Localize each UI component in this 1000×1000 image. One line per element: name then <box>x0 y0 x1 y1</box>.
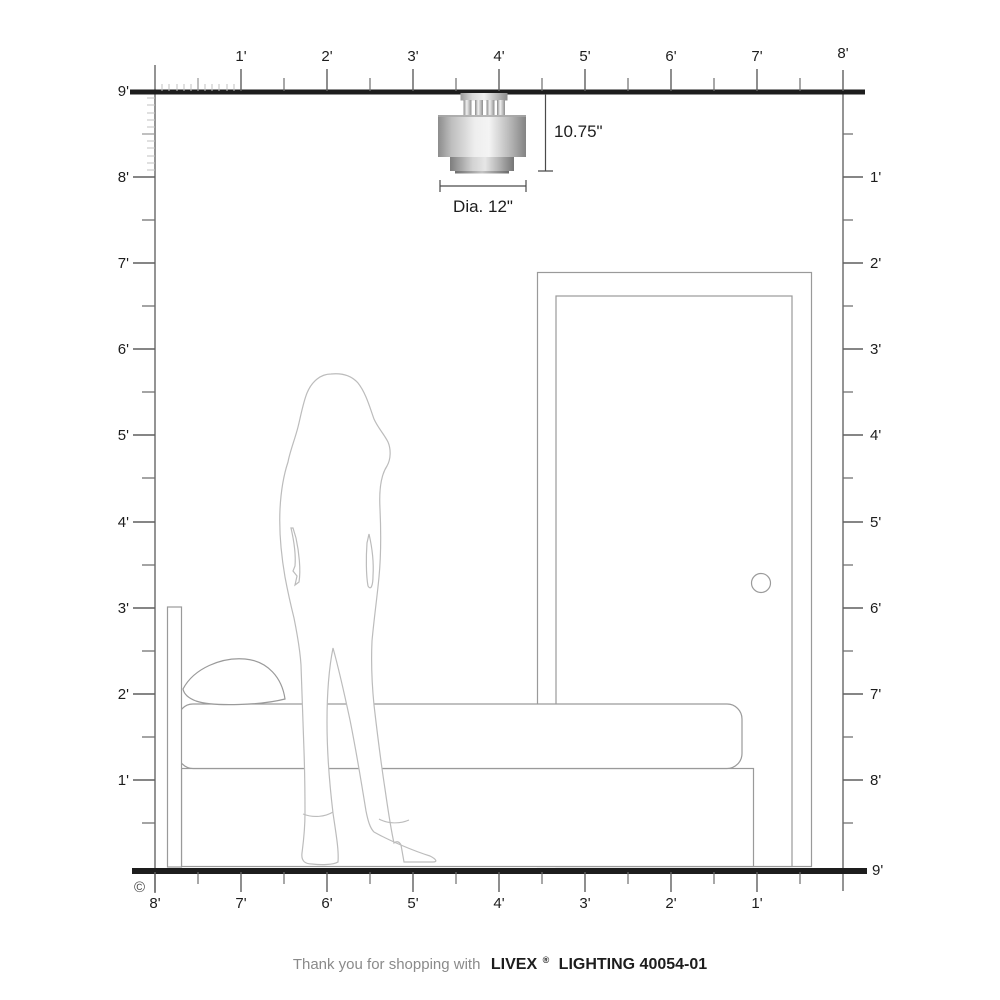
right-ruler-label: 1' <box>870 169 881 186</box>
left-ruler-label: 5' <box>118 427 129 444</box>
bottom-ruler-label: 4' <box>493 895 504 912</box>
footer-prefix: Thank you for shopping with <box>293 956 481 973</box>
bed-base <box>182 769 754 867</box>
left-ruler-label: 8' <box>118 169 129 186</box>
copyright-symbol: © <box>134 879 145 896</box>
bottom-ruler-label: 7' <box>235 895 246 912</box>
top-half-foot-ticks <box>284 78 800 91</box>
scale-diagram-svg: 1' 2' 3' 4' 5' 6' 7' 8' 9' 8' 7' 6' 5' 4… <box>0 0 1000 1000</box>
top-ruler-label: 6' <box>665 48 676 65</box>
bed-headboard <box>168 607 182 867</box>
right-ruler-label: 2' <box>870 255 881 272</box>
fixture-drum <box>438 115 526 157</box>
top-ruler-label: 4' <box>493 48 504 65</box>
height-dimension-label: 10.75" <box>554 122 603 141</box>
bottom-ruler-label: 1' <box>751 895 762 912</box>
top-ruler-label: 3' <box>407 48 418 65</box>
height-dimension: 10.75" <box>538 94 603 171</box>
left-ruler-label: 2' <box>118 686 129 703</box>
door-knob <box>752 574 771 593</box>
bottom-ruler-label: 6' <box>321 895 332 912</box>
left-ruler-label: 3' <box>118 600 129 617</box>
left-ruler-label: 1' <box>118 772 129 789</box>
footer-model: LIGHTING 40054-01 <box>559 956 708 973</box>
diameter-dimension: Dia. 12" <box>440 180 526 216</box>
right-ruler-label: 9' <box>872 862 883 879</box>
fixture-rod <box>487 100 495 117</box>
ceiling-light-fixture <box>438 93 526 174</box>
right-ruler-label: 3' <box>870 341 881 358</box>
footer-brand: LIVEX <box>491 956 538 973</box>
fixture-rod <box>475 100 483 117</box>
top-ruler-label: 7' <box>751 48 762 65</box>
right-half-foot-ticks <box>843 134 853 823</box>
top-ruler-label: 5' <box>579 48 590 65</box>
top-ruler-label: 1' <box>235 48 246 65</box>
diagram-canvas: 1' 2' 3' 4' 5' 6' 7' 8' 9' 8' 7' 6' 5' 4… <box>0 0 1000 1000</box>
bed-mattress <box>178 704 742 769</box>
right-ruler-label: 8' <box>870 772 881 789</box>
bottom-ruler-label: 8' <box>149 895 160 912</box>
fixture-canopy <box>461 93 508 101</box>
right-ruler-label: 4' <box>870 427 881 444</box>
bottom-ruler-label: 2' <box>665 895 676 912</box>
fixture-lower-tier <box>450 157 514 171</box>
left-ruler-label: 4' <box>118 514 129 531</box>
footer-registered-mark: ® <box>543 955 550 965</box>
top-ruler-label: 2' <box>321 48 332 65</box>
left-ruler-label: 6' <box>118 341 129 358</box>
top-ruler: 1' 2' 3' 4' 5' 6' 7' 8' <box>162 45 849 91</box>
fixture-bottom-lip <box>455 171 509 174</box>
bottom-ruler: 8' 7' 6' 5' 4' 3' 2' 1' <box>149 872 800 912</box>
footer-text: Thank you for shopping with LIVEX ® LIGH… <box>293 950 707 973</box>
left-ruler-label: 9' <box>118 83 129 100</box>
top-ruler-label: 8' <box>837 45 848 62</box>
fixture-rod <box>464 100 472 117</box>
bed-pillow <box>183 659 285 705</box>
fixture-rod <box>497 100 505 117</box>
right-ruler: 1' 2' 3' 4' 5' 6' 7' 8' 9' <box>843 134 883 879</box>
diameter-dimension-line <box>440 180 526 192</box>
left-ruler-label: 7' <box>118 255 129 272</box>
bottom-ruler-label: 3' <box>579 895 590 912</box>
diameter-dimension-label: Dia. 12" <box>453 197 513 216</box>
height-dimension-line <box>538 94 553 171</box>
bottom-ruler-label: 5' <box>407 895 418 912</box>
right-ruler-label: 5' <box>870 514 881 531</box>
right-ruler-label: 6' <box>870 600 881 617</box>
right-ruler-label: 7' <box>870 686 881 703</box>
fixture-drum-top-edge <box>438 115 526 117</box>
left-ruler: 9' 8' 7' 6' 5' 4' 3' 2' 1' <box>118 83 155 823</box>
